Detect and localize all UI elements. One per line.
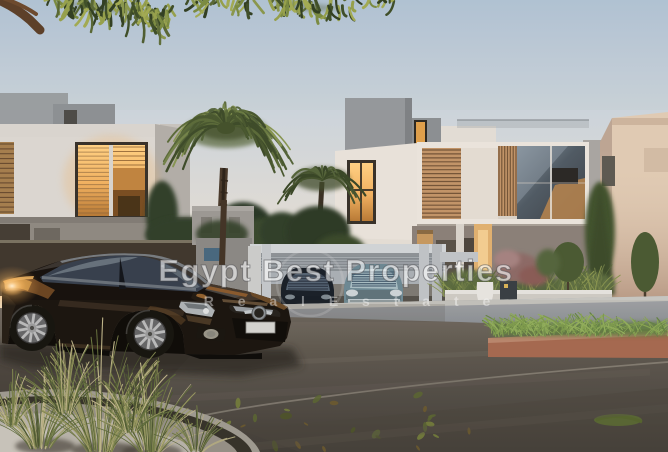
svg-text:Egypt Best Properties: Egypt Best Properties — [158, 253, 513, 288]
svg-text:R e a l E s t a t e: R e a l E s t a t e — [204, 293, 501, 309]
